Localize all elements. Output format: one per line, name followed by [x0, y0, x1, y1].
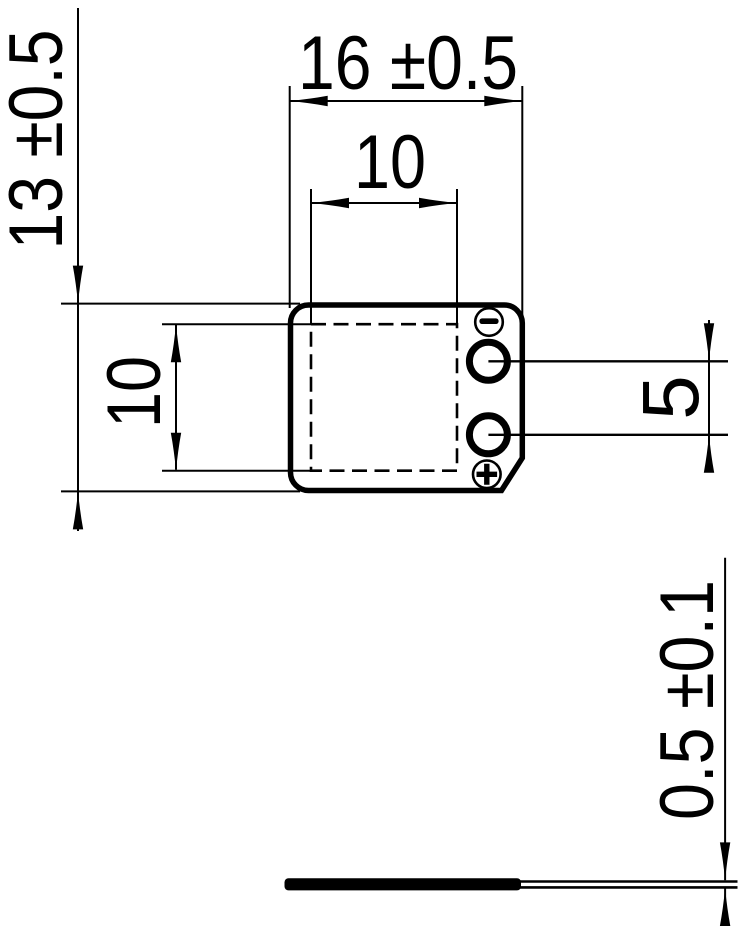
- svg-text:5: 5: [626, 375, 715, 420]
- svg-text:10: 10: [354, 120, 426, 205]
- svg-text:13 ±0.5: 13 ±0.5: [0, 30, 79, 250]
- svg-text:16 ±0.5: 16 ±0.5: [298, 21, 518, 106]
- svg-text:0.5 ±0.1: 0.5 ±0.1: [645, 580, 730, 820]
- svg-text:10: 10: [92, 356, 177, 428]
